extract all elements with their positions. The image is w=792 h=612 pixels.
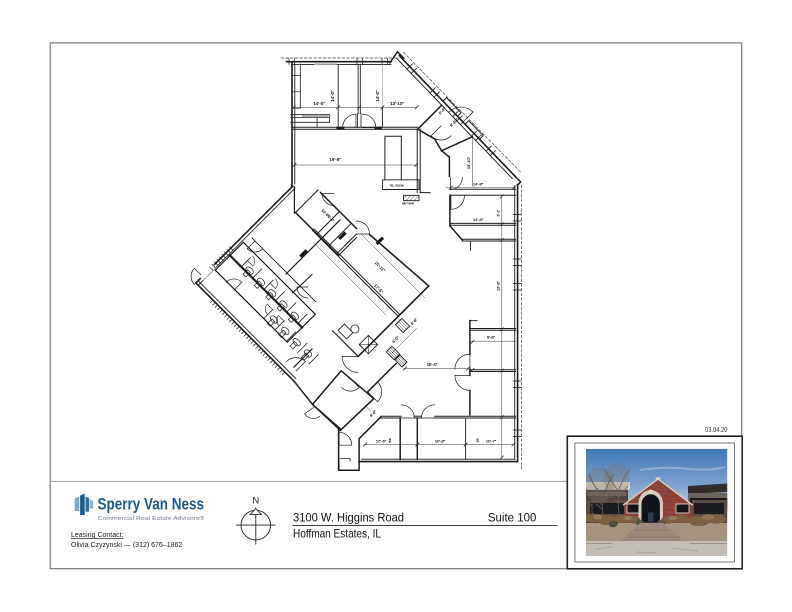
svg-text:10’-8″: 10’-8″: [435, 438, 446, 443]
svg-text:Olivia Czyzynski — (312) 6: Olivia Czyzynski — (312) 676–1862: [71, 542, 182, 549]
svg-text:14’-8″: 14’-8″: [473, 217, 484, 222]
svg-text:3⁄4: 3⁄4: [476, 438, 480, 442]
svg-text:14’-0″: 14’-0″: [375, 90, 380, 102]
svg-text:Sperry Van Ness: Sperry Van Ness: [98, 495, 205, 514]
svg-text:Suite 100: Suite 100: [488, 510, 537, 524]
svg-text:9’-6″: 9’-6″: [327, 215, 336, 224]
svg-text:13’-10″: 13’-10″: [390, 101, 404, 106]
svg-text:WET BAR: WET BAR: [402, 202, 414, 206]
svg-text:14’-0″: 14’-0″: [330, 90, 335, 102]
svg-text:6’-6″: 6’-6″: [487, 335, 496, 340]
svg-text:15’-4″: 15’-4″: [427, 362, 438, 367]
svg-text:03.04.20: 03.04.20: [705, 427, 728, 434]
svg-text:Commercial Real Estate Advisor: Commercial Real Estate Advisors®: [98, 515, 206, 522]
svg-text:12’-6″: 12’-6″: [376, 438, 387, 443]
svg-text:6’-0″: 6’-0″: [392, 335, 401, 344]
svg-text:4’-0″: 4’-0″: [369, 409, 378, 418]
svg-text:19’-8″: 19’-8″: [329, 157, 341, 162]
svg-text:13’-10″: 13’-10″: [466, 156, 471, 169]
svg-text:13’-8″: 13’-8″: [495, 280, 500, 291]
svg-text:3100 W. Higgins Road: 3100 W. Higgins Road: [293, 510, 404, 524]
svg-text:N: N: [252, 496, 259, 507]
svg-text:8’-6″: 8’-6″: [410, 317, 419, 326]
svg-text:21’-11″: 21’-11″: [374, 260, 387, 273]
svg-text:3’-1″: 3’-1″: [497, 209, 501, 217]
svg-text:14’-5″: 14’-5″: [313, 101, 325, 106]
svg-text:10’-7″: 10’-7″: [486, 438, 497, 443]
svg-text:Hoffman Estates, IL: Hoffman Estates, IL: [293, 527, 381, 540]
svg-text:14’-8″: 14’-8″: [473, 182, 484, 187]
svg-text:TEL. ROOM: TEL. ROOM: [389, 183, 403, 187]
svg-text:5⁄8: 5⁄8: [388, 438, 392, 442]
svg-text:Leasing Contact:: Leasing Contact:: [71, 532, 124, 539]
